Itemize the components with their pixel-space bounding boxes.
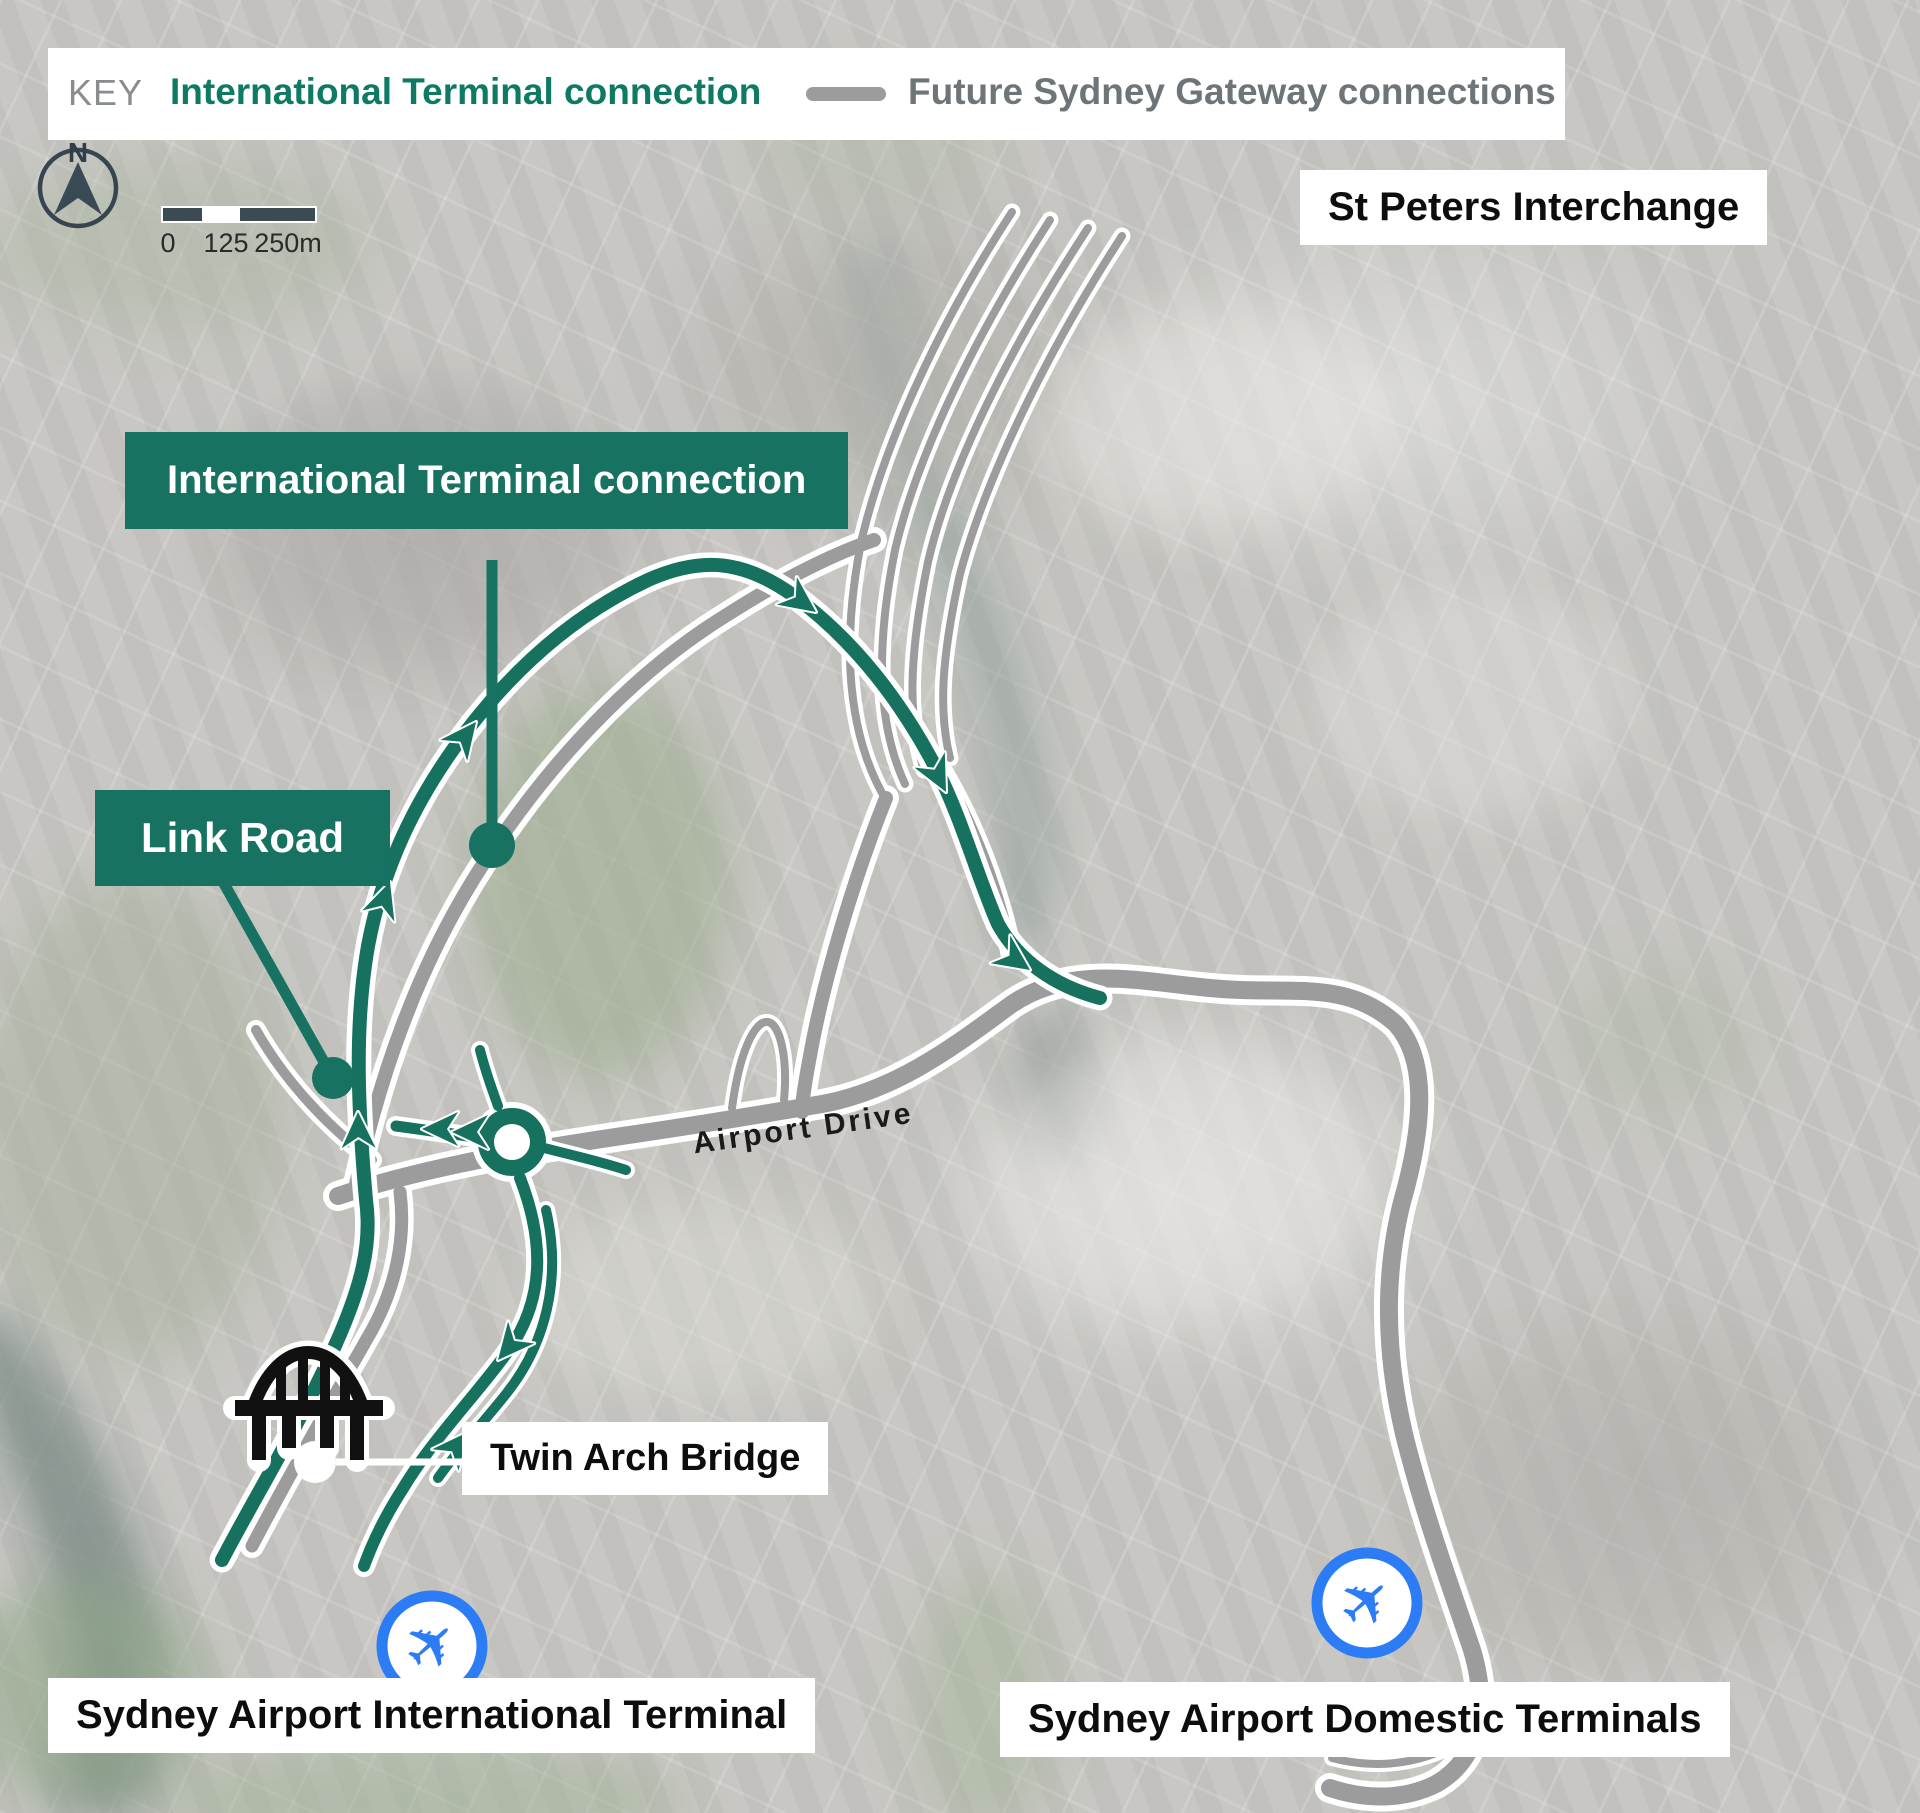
key-item-future-gateway: Future Sydney Gateway connections xyxy=(908,71,1556,113)
compass-north-label: N xyxy=(68,137,88,168)
scale-start: 0 xyxy=(160,228,175,258)
park-layer xyxy=(0,90,1800,1813)
link-road-callout: Link Road xyxy=(95,790,390,886)
scale-end: 250m xyxy=(254,228,322,258)
key-item-international-connection: International Terminal connection xyxy=(170,71,761,113)
map-key: KEY International Terminal connection Fu… xyxy=(48,48,1565,140)
st-peters-interchange-label: St Peters Interchange xyxy=(1300,170,1767,245)
domestic-terminals-plane-icon xyxy=(1317,1553,1417,1653)
gray-line-swatch xyxy=(806,87,886,101)
map-canvas: ✈ xyxy=(0,0,1920,1813)
key-title: KEY xyxy=(68,72,143,114)
link-road-dot xyxy=(312,1057,354,1099)
map-infographic: ✈ xyxy=(0,0,1920,1813)
international-connection-dot xyxy=(469,822,515,868)
twin-arch-bridge-label: Twin Arch Bridge xyxy=(462,1422,828,1495)
roundabout-center xyxy=(499,1129,525,1155)
international-terminal-label: Sydney Airport International Terminal xyxy=(48,1678,815,1753)
scale-middle: 125 xyxy=(203,228,248,258)
domestic-terminals-label: Sydney Airport Domestic Terminals xyxy=(1000,1682,1730,1757)
international-connection-callout: International Terminal connection xyxy=(125,432,848,529)
